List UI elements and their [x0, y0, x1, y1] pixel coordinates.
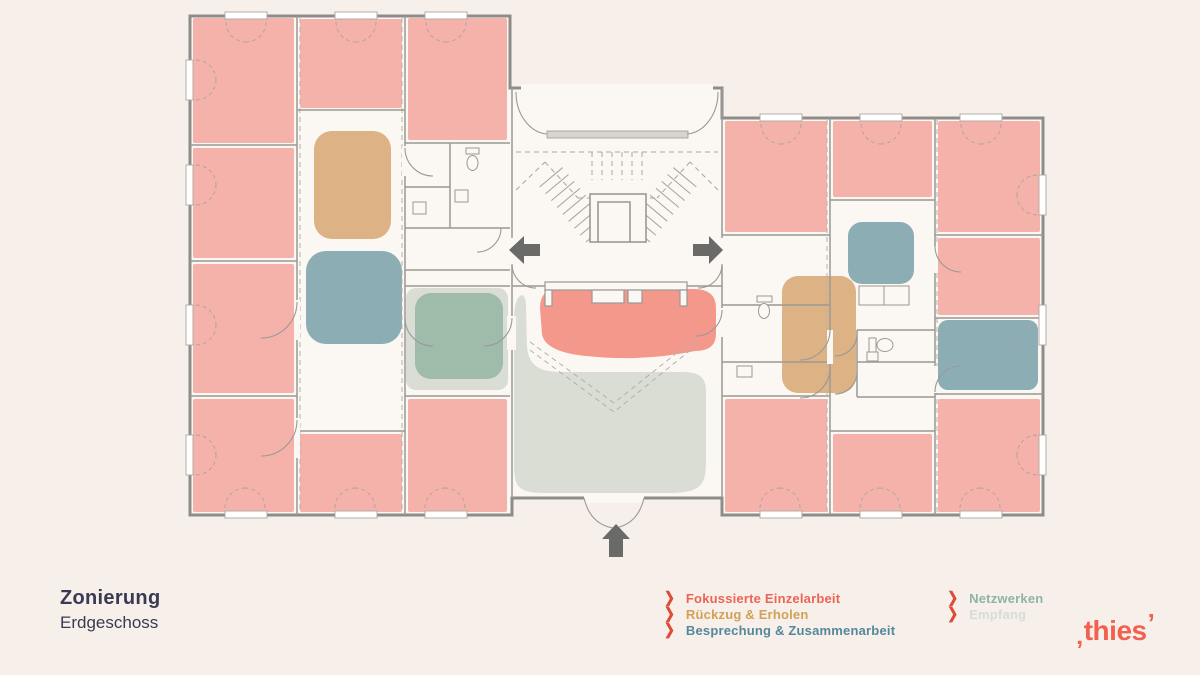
chevron-icon: ❯	[947, 607, 958, 621]
zone-focus-room	[300, 19, 402, 108]
legend-label: Fokussierte Einzelarbeit	[686, 591, 840, 606]
zone-focus-room	[408, 18, 507, 140]
chevron-icon: ❯	[947, 591, 958, 605]
logo-left-mark: ‚	[1076, 620, 1083, 650]
zone-retreat-left	[314, 131, 391, 239]
floorplan	[0, 0, 1200, 675]
zone-focus-room	[833, 121, 932, 197]
sink-icon	[455, 190, 468, 202]
chevron-icon: ❯	[664, 623, 675, 637]
legend-item-focus: ❯ Fokussierte Einzelarbeit	[664, 592, 895, 604]
zone-focus-room	[725, 399, 827, 512]
slide: Zonierung Erdgeschoss ❯ Fokussierte Einz…	[0, 0, 1200, 675]
legend-item-reception: ❯ Empfang	[947, 608, 1043, 620]
zone-focus-room	[938, 121, 1040, 232]
toilet-icon	[467, 156, 478, 171]
zone-network-room	[415, 293, 503, 379]
legend-item-network: ❯ Netzwerken	[947, 592, 1043, 604]
toilet-icon	[877, 339, 893, 352]
zone-meeting-left	[306, 251, 402, 344]
logo-text: thies	[1084, 615, 1147, 646]
zone-meeting-right-small	[848, 222, 914, 284]
zone-focus-room	[725, 121, 827, 232]
toilet-tank	[466, 148, 479, 154]
logo-right-mark: ’	[1148, 608, 1155, 638]
zone-focus-room	[193, 148, 294, 258]
sink-icon	[413, 202, 426, 214]
arrow-entrance-icon	[602, 524, 630, 557]
sink-icon	[867, 352, 878, 361]
toilet-icon	[759, 304, 770, 319]
page-subtitle: Erdgeschoss	[60, 613, 160, 633]
legend-label: Besprechung & Zusammenarbeit	[686, 623, 895, 638]
zone-focus-room	[938, 399, 1040, 512]
toilet-tank	[869, 338, 876, 352]
title-block: Zonierung Erdgeschoss	[60, 587, 160, 633]
zone-retreat-right	[782, 276, 856, 393]
legend-label: Rückzug & Erholen	[686, 607, 809, 622]
chevron-icon: ❯	[664, 591, 675, 605]
legend-item-retreat: ❯ Rückzug & Erholen	[664, 608, 895, 620]
legend: ❯ Fokussierte Einzelarbeit ❯ Rückzug & E…	[664, 592, 1043, 636]
zone-focus-room	[408, 399, 507, 512]
legend-label: Netzwerken	[969, 591, 1043, 606]
portal-beam	[547, 131, 688, 138]
zone-focus-room	[193, 264, 294, 393]
legend-label: Empfang	[969, 607, 1026, 622]
sink-icon	[737, 366, 752, 377]
legend-column-1: ❯ Fokussierte Einzelarbeit ❯ Rückzug & E…	[664, 592, 895, 636]
thies-logo: ‚thies’	[1076, 608, 1154, 651]
zone-focus-room	[833, 434, 932, 512]
zones-network	[415, 293, 503, 379]
zone-focus-room	[938, 238, 1040, 315]
legend-item-meeting: ❯ Besprechung & Zusammenarbeit	[664, 624, 895, 636]
legend-column-2: ❯ Netzwerken ❯ Empfang	[947, 592, 1043, 636]
zone-focus-room	[193, 18, 294, 143]
chevron-icon: ❯	[664, 607, 675, 621]
zone-focus-room	[300, 434, 402, 512]
zone-focus-room	[193, 399, 294, 512]
page-title: Zonierung	[60, 587, 160, 610]
toilet-tank	[757, 296, 772, 302]
